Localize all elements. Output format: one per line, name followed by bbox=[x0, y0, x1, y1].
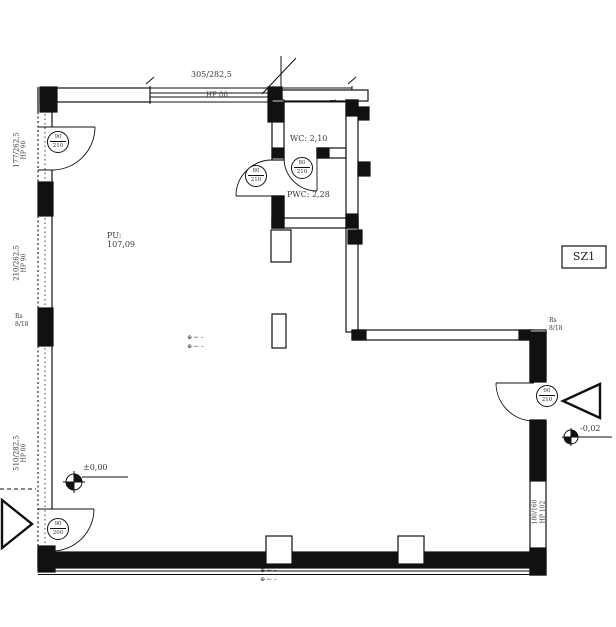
level-text-main: ±0,00 bbox=[83, 463, 108, 472]
column-label-right: Rs 8/18 bbox=[549, 317, 562, 332]
left-upper-window-label: 177/262,5 HP 90 bbox=[12, 132, 28, 168]
room-label-wc: WC: 2,10 bbox=[290, 134, 327, 143]
wing-wall bbox=[352, 330, 533, 340]
floor-plan: 305/282,5 HP 00 → 177/262,5 HP 90 210/26… bbox=[0, 0, 616, 627]
door-marker-pwc: 80 210 bbox=[245, 165, 267, 187]
door-marker-entry-right: 90 210 bbox=[536, 385, 558, 407]
top-window-hp: HP 00 bbox=[206, 91, 228, 99]
duct-shaft bbox=[271, 230, 291, 262]
room-label-pwc: PWC: 2,28 bbox=[287, 190, 330, 199]
annotation-bottom-1: ⊕ ← – bbox=[260, 567, 277, 575]
pilaster-right bbox=[398, 536, 424, 564]
north-arrow-icon: → bbox=[330, 96, 337, 105]
bottom-wall bbox=[38, 536, 545, 575]
level-marker-main bbox=[63, 471, 128, 493]
left-mid-window-label: 210/262,5 HP 90 bbox=[12, 245, 28, 281]
room-label-main: PU: 107,09 bbox=[107, 231, 135, 249]
left-wall bbox=[38, 87, 55, 572]
pilaster-left bbox=[266, 536, 292, 564]
level-text-entry: -0,02 bbox=[580, 424, 601, 433]
top-wall bbox=[40, 56, 369, 122]
annotation-bottom-2: ⊕ ← – bbox=[260, 576, 277, 584]
entrance-arrow-right bbox=[563, 384, 600, 418]
door-marker-entry-bottom: 90 200 bbox=[47, 518, 69, 540]
pier bbox=[272, 314, 286, 348]
annotation-mid-2: ⊕ ← – bbox=[187, 343, 204, 351]
right-wall bbox=[529, 330, 547, 575]
door-arc-entry-right bbox=[496, 383, 534, 421]
top-window-dim: 305/282,5 bbox=[191, 70, 232, 79]
door-marker-wc: 80 210 bbox=[291, 157, 313, 179]
section-symbol-label: SZ1 bbox=[562, 246, 606, 268]
right-window-label: 180/160 HP 102 bbox=[532, 500, 547, 525]
left-lower-window-label: 510/282,5 HP 00 bbox=[12, 435, 28, 471]
plan-drawing bbox=[0, 0, 616, 627]
annotation-mid-1: ⊕ ← – bbox=[187, 334, 204, 342]
door-marker-entry-top: 90 210 bbox=[47, 131, 69, 153]
column-label-left: Rs 8/18 bbox=[15, 313, 28, 328]
entrance-arrow-left bbox=[2, 500, 32, 548]
